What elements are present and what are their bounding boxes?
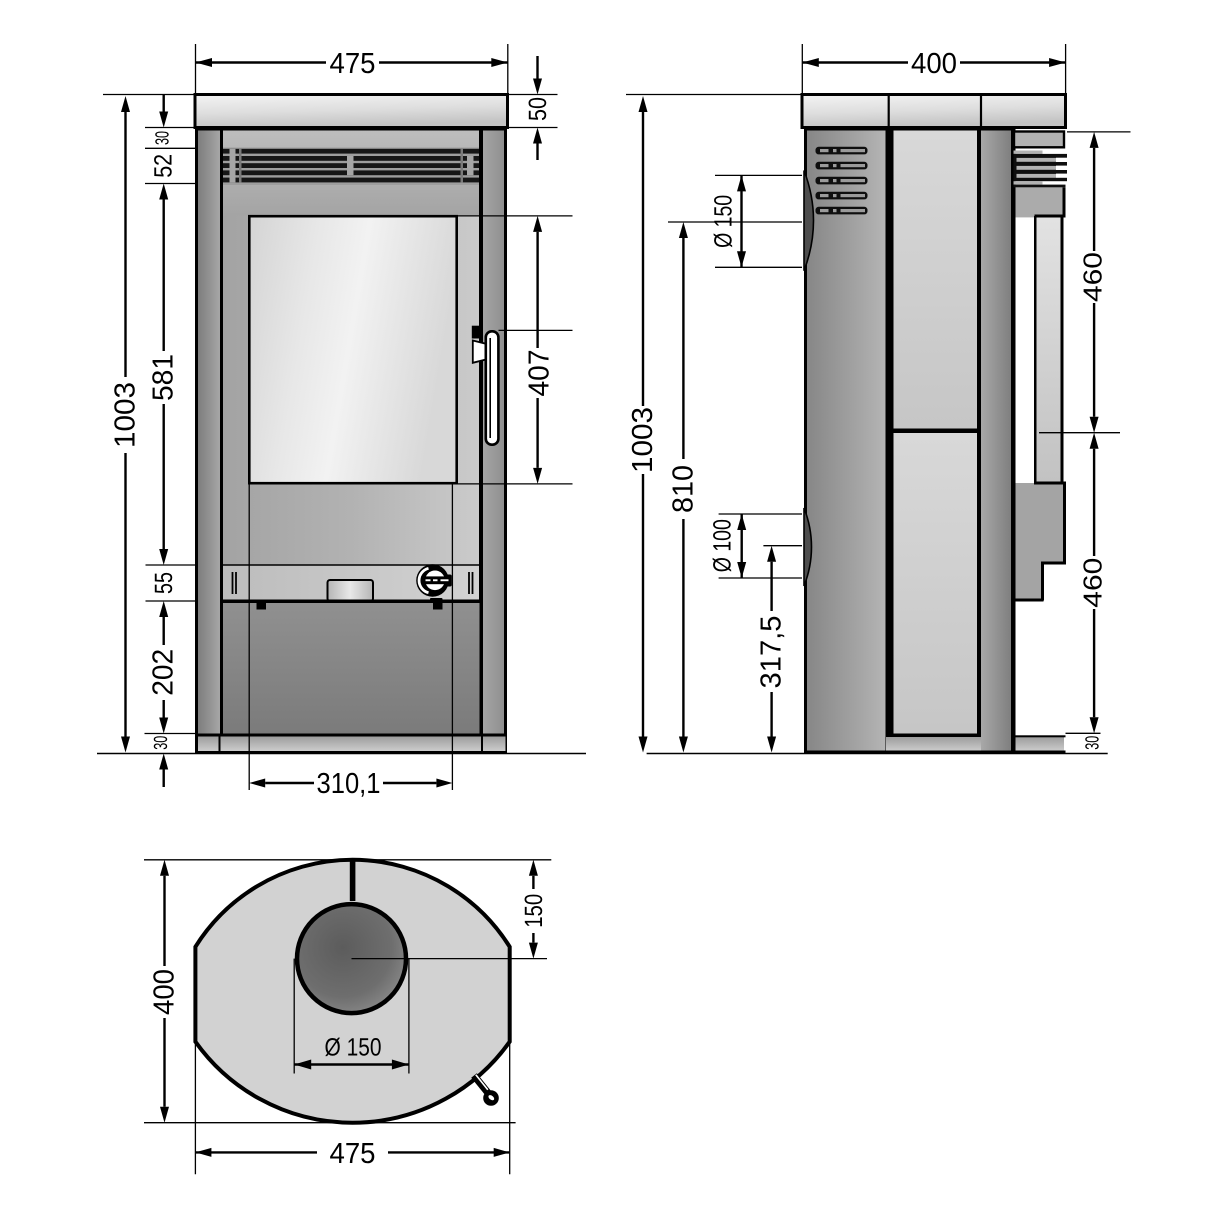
- svg-text:460: 460: [1078, 252, 1108, 302]
- svg-text:55: 55: [150, 572, 178, 594]
- svg-text:581: 581: [148, 354, 180, 401]
- svg-text:1003: 1003: [110, 382, 142, 448]
- svg-text:30: 30: [1082, 736, 1103, 750]
- svg-text:50: 50: [524, 97, 552, 121]
- svg-text:202: 202: [148, 649, 180, 696]
- svg-text:1003: 1003: [627, 407, 659, 473]
- svg-text:475: 475: [330, 48, 376, 80]
- svg-text:475: 475: [330, 1138, 376, 1170]
- svg-text:407: 407: [524, 350, 556, 397]
- svg-text:Ø 150: Ø 150: [710, 195, 738, 248]
- svg-text:Ø 150: Ø 150: [325, 1034, 382, 1062]
- svg-text:30: 30: [152, 131, 173, 145]
- svg-text:310,1: 310,1: [317, 768, 381, 800]
- svg-text:460: 460: [1078, 558, 1108, 608]
- svg-text:30: 30: [151, 736, 172, 750]
- svg-text:Ø 100: Ø 100: [709, 519, 737, 572]
- svg-text:810: 810: [667, 465, 699, 513]
- svg-text:400: 400: [149, 969, 181, 1015]
- svg-text:317,5: 317,5: [756, 616, 788, 689]
- svg-text:400: 400: [911, 48, 957, 80]
- svg-text:150: 150: [520, 894, 548, 928]
- svg-text:52: 52: [150, 154, 178, 178]
